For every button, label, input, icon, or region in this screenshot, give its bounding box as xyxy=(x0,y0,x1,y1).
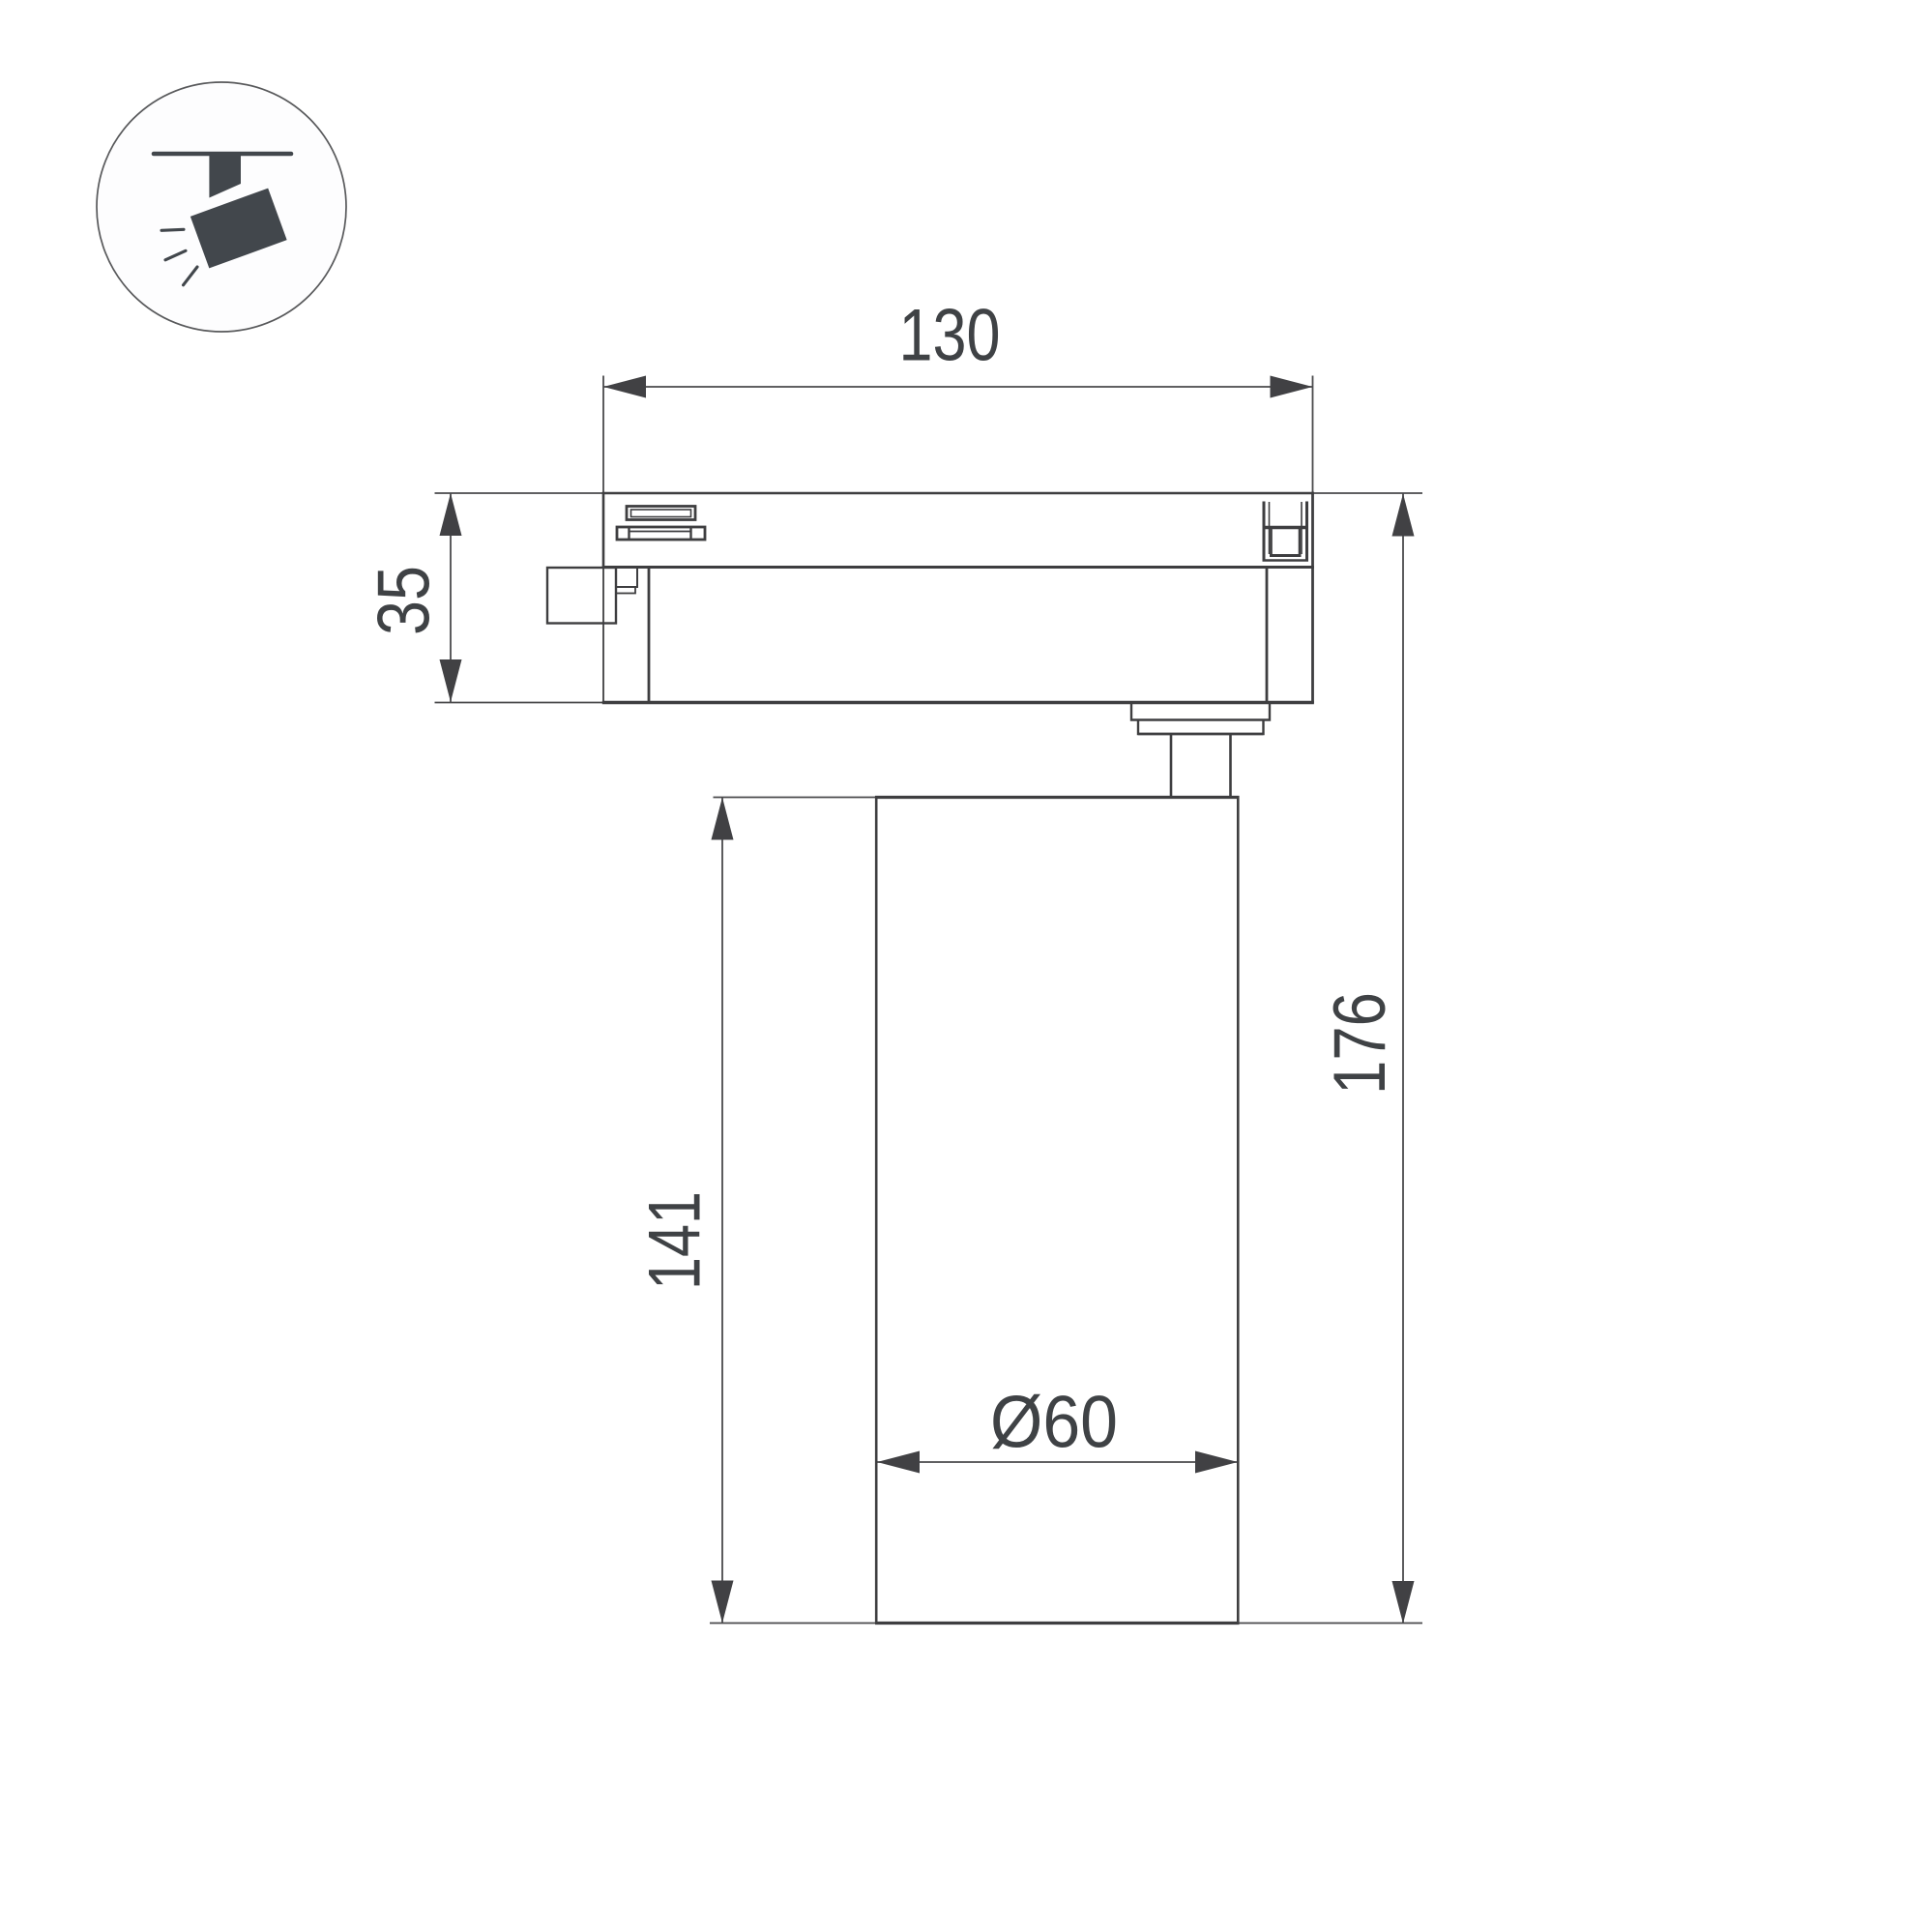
svg-text:35: 35 xyxy=(364,566,446,635)
svg-text:176: 176 xyxy=(1319,992,1401,1095)
svg-text:141: 141 xyxy=(634,1191,717,1290)
svg-text:130: 130 xyxy=(899,295,1001,377)
svg-text:Ø60: Ø60 xyxy=(990,1382,1118,1464)
